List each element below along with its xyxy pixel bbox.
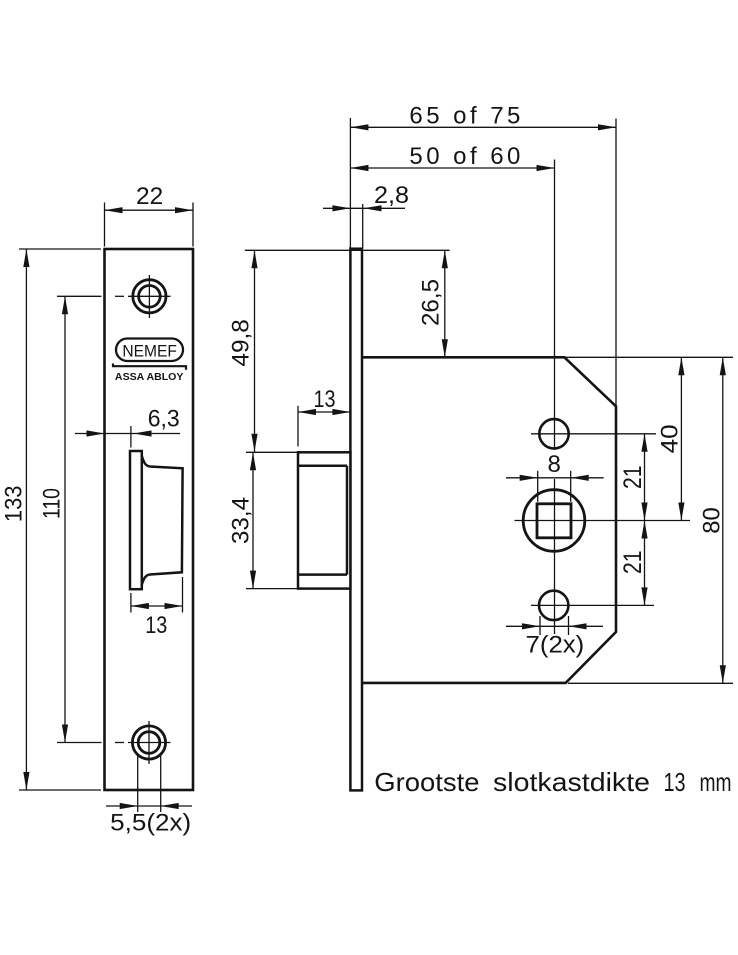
svg-text:22: 22 [136,183,163,210]
svg-text:Grootste: Grootste [374,767,479,797]
svg-text:13: 13 [145,612,167,639]
svg-text:5,5(2x): 5,5(2x) [110,810,191,837]
svg-text:NEMEF: NEMEF [122,343,177,361]
svg-text:slotkastdikte: slotkastdikte [493,767,650,797]
svg-text:49,8: 49,8 [227,319,254,366]
svg-text:26,5: 26,5 [417,279,444,326]
svg-text:40: 40 [657,424,684,453]
svg-text:7(2x): 7(2x) [526,632,585,659]
svg-text:133: 133 [0,486,27,523]
svg-text:8: 8 [548,451,561,478]
svg-text:21: 21 [619,465,647,489]
svg-text:110: 110 [39,488,66,519]
svg-text:33,4: 33,4 [227,497,254,544]
svg-text:13: 13 [664,767,686,797]
svg-text:2,8: 2,8 [374,182,409,209]
svg-text:ASSA ABLOY: ASSA ABLOY [115,371,184,383]
svg-text:21: 21 [619,550,647,574]
svg-text:6,3: 6,3 [148,405,180,432]
svg-text:80: 80 [698,507,725,534]
svg-text:13: 13 [314,386,336,413]
svg-text:mm: mm [700,767,732,797]
